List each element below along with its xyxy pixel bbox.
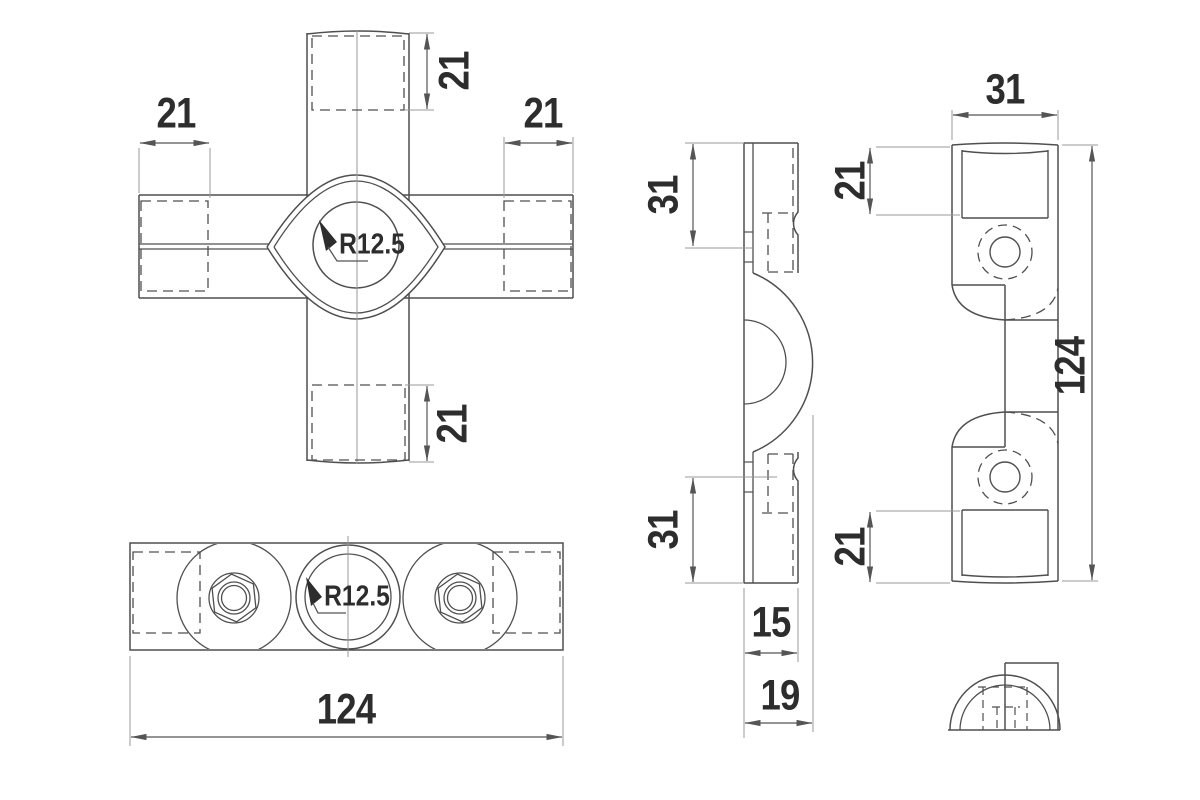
technical-drawing-sheet: 21 21 21 21 R12.5 R12.5 124 31 31 15 19 … (0, 0, 1200, 800)
dim-front-top-arm: 21 (434, 52, 477, 91)
dim-front-left-arm: 21 (157, 93, 196, 136)
dim-side-height: 124 (1050, 337, 1093, 395)
dim-profile-thickness: 15 (752, 602, 791, 645)
hex-nut-right (435, 573, 485, 623)
dim-profile-depth: 19 (761, 675, 800, 718)
radius-leader-arrow-icon (306, 577, 322, 606)
hex-nut-left (209, 573, 259, 623)
dim-front-bottom-arm: 21 (432, 405, 475, 444)
dim-side-width: 31 (986, 69, 1025, 112)
dim-profile-top: 31 (643, 176, 686, 215)
detail-view (948, 663, 1060, 730)
dim-side-bottom: 21 (830, 528, 873, 567)
dim-front-right-arm: 21 (524, 93, 563, 136)
dim-profile-bottom: 31 (643, 511, 686, 550)
dim-side-top: 21 (830, 162, 873, 201)
side-view (952, 143, 1058, 583)
label-bottom-radius: R12.5 (324, 583, 390, 612)
label-front-radius: R12.5 (339, 231, 405, 260)
profile-view (744, 143, 813, 583)
dim-bottom-width: 124 (317, 689, 375, 732)
